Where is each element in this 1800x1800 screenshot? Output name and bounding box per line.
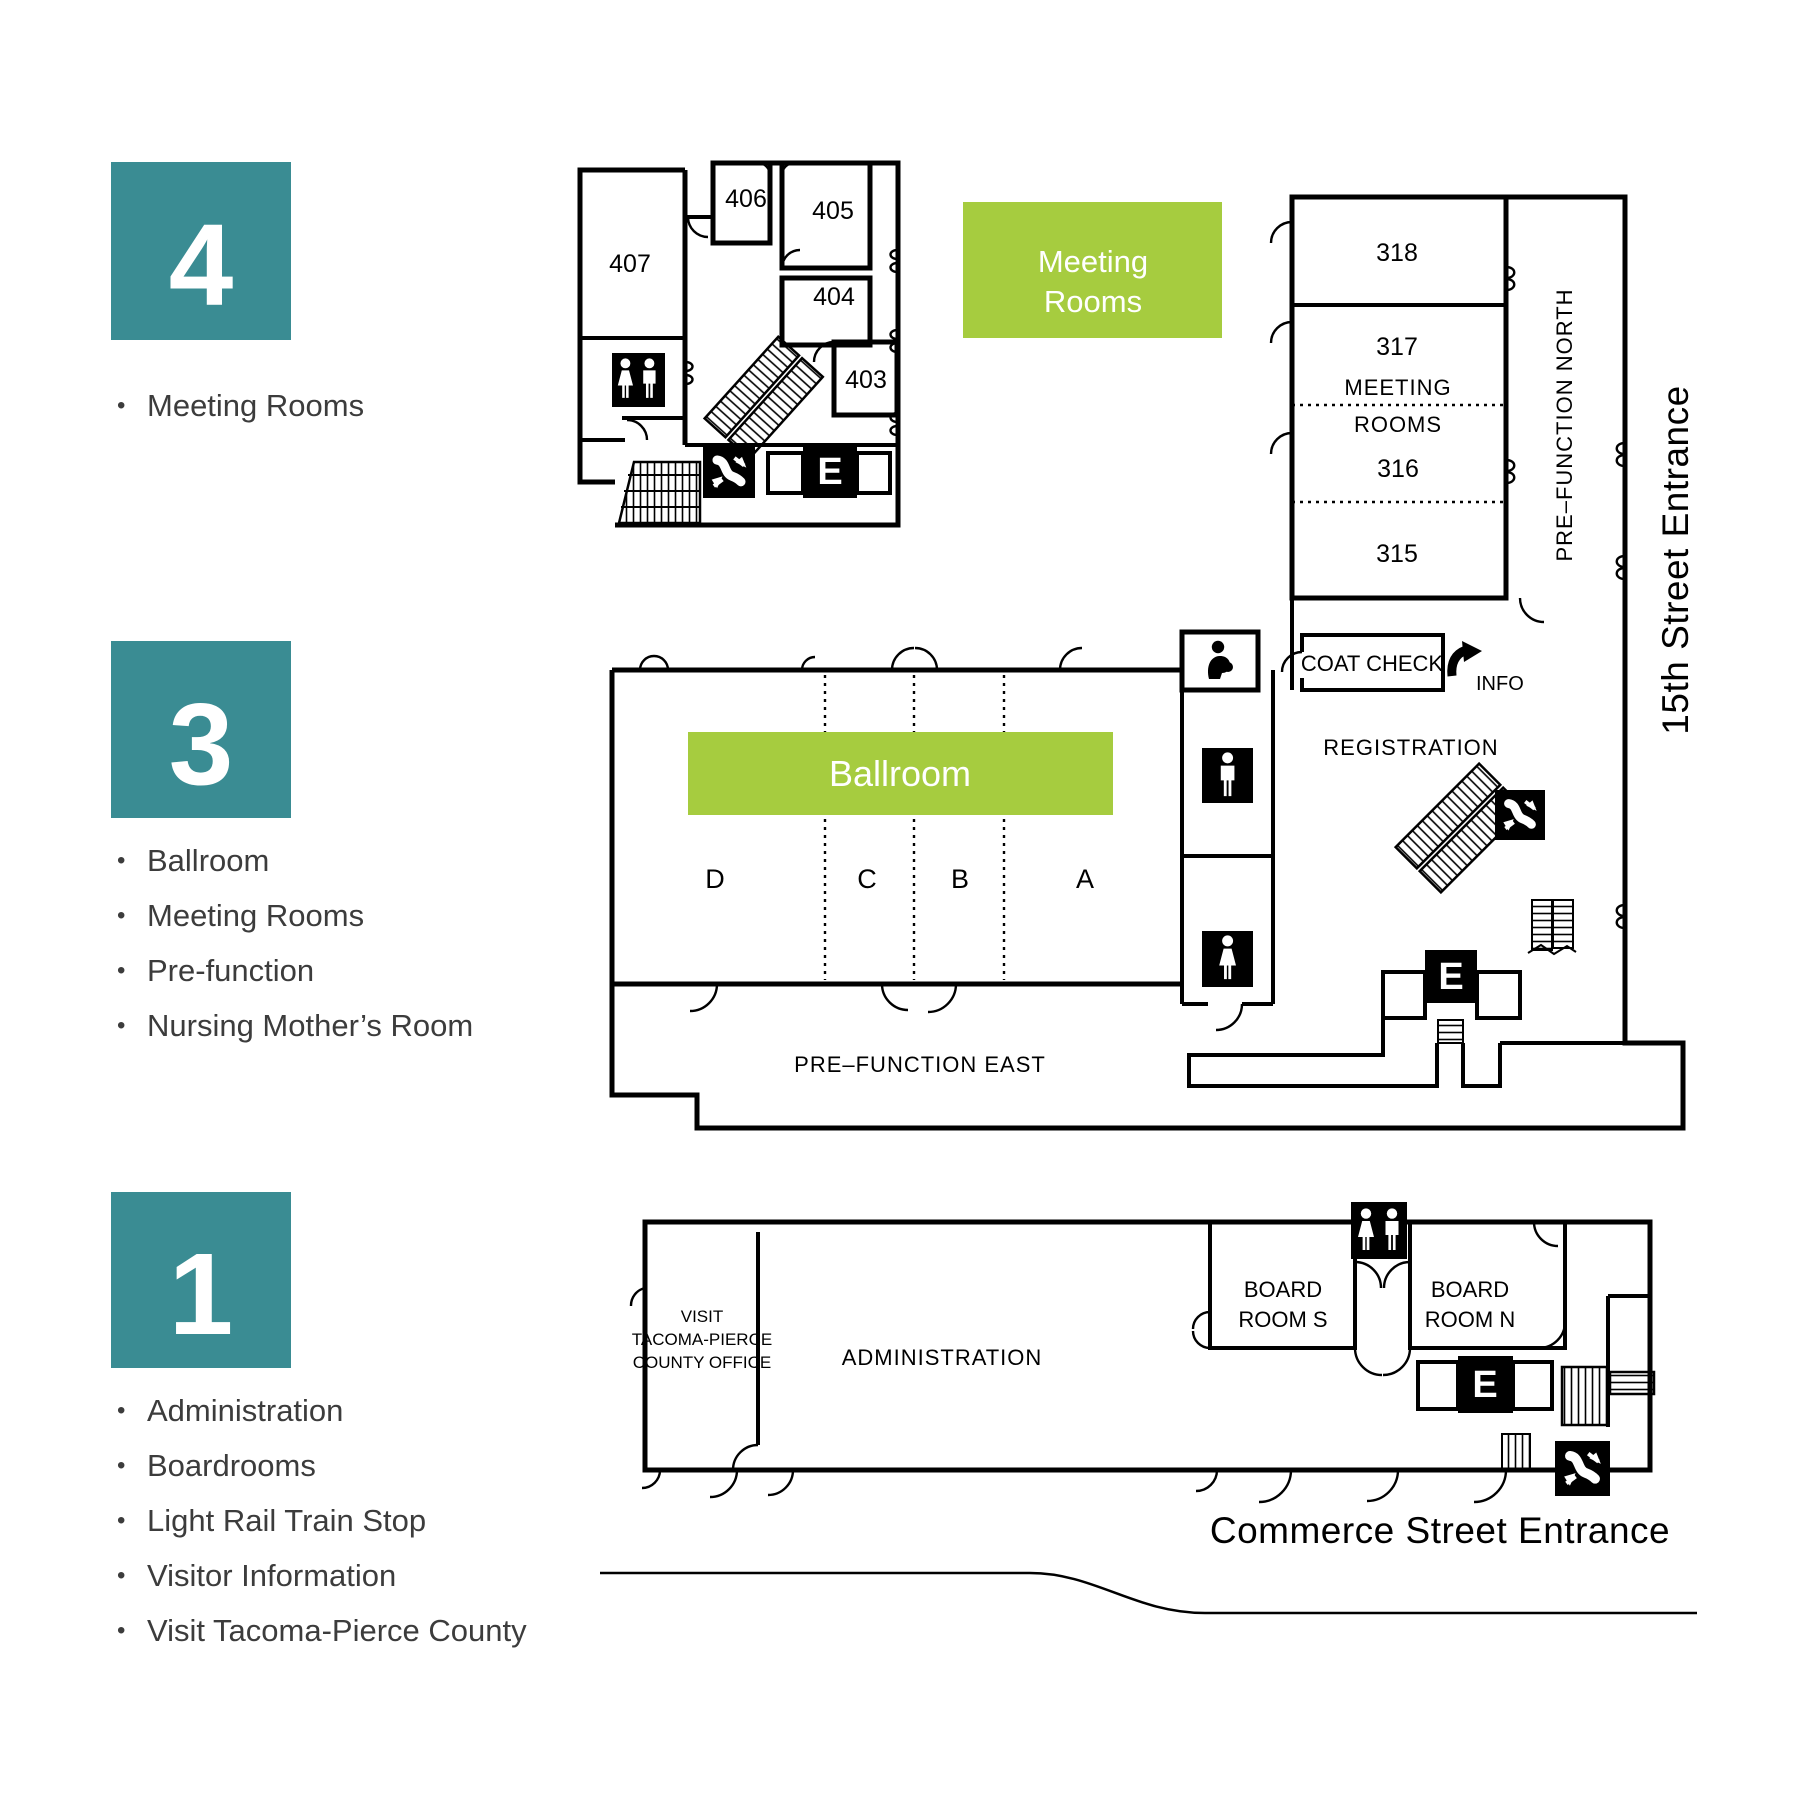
- room-label-405: 405: [812, 197, 854, 225]
- room-label-407: 407: [609, 250, 651, 278]
- room-label-315: 315: [1376, 540, 1418, 568]
- 15th-street-entrance-label: 15th Street Entrance: [1655, 385, 1696, 734]
- restroom-icon: [612, 353, 665, 407]
- visit-office-label-line: VISIT: [681, 1307, 724, 1326]
- ballroom-tag: Ballroom: [688, 732, 1113, 815]
- board-room-s-label: ROOM S: [1238, 1307, 1327, 1332]
- room-label-316: 316: [1377, 455, 1419, 483]
- registration-label: REGISTRATION: [1323, 735, 1498, 760]
- nursing-room-icon: [1208, 641, 1233, 679]
- prefunction-east-label: PRE–FUNCTION EAST: [794, 1052, 1046, 1077]
- info-label: INFO: [1476, 673, 1524, 695]
- visit-office-label-line: TACOMA-PIERCE: [632, 1330, 772, 1349]
- ballroom-section-d: D: [705, 864, 725, 894]
- floor-4-title-line: Rooms: [1044, 284, 1142, 319]
- restroom-icon: [1351, 1202, 1407, 1259]
- commerce-street-entrance-label: Commerce Street Entrance: [1210, 1510, 1670, 1551]
- board-room-n-label: ROOM N: [1425, 1307, 1515, 1332]
- stairs-icon: [1528, 900, 1576, 954]
- room-label-404: 404: [813, 283, 855, 311]
- ballroom-dividers: [825, 675, 1004, 980]
- coat-check-label: COAT CHECK: [1301, 651, 1444, 676]
- escalator-icon: [1495, 790, 1545, 840]
- restroom-women-icon: [1202, 931, 1253, 987]
- ballroom-section-b: B: [951, 864, 969, 894]
- floor-4-title-tag: Meeting Rooms: [963, 202, 1222, 338]
- room-label-403: 403: [845, 366, 887, 394]
- meeting-rooms-label-line: MEETING: [1344, 375, 1451, 400]
- floor-1-plan: E VISIT TACOMA-PIERCE COUNTY OFFICE ADMI…: [600, 1202, 1697, 1613]
- floor-4-title-line: Meeting: [1038, 244, 1148, 279]
- elevator-icon: E: [1418, 1356, 1552, 1413]
- meeting-rooms-label-line: ROOMS: [1354, 412, 1442, 437]
- stairs-icon: [1438, 1020, 1463, 1043]
- prefunction-north-label: PRE–FUNCTION NORTH: [1552, 288, 1577, 561]
- visit-office-label-line: COUNTY OFFICE: [633, 1353, 772, 1372]
- floor-4-plan: E 407 406 405 404 403 Meeting Rooms: [580, 163, 1222, 525]
- board-room-s-label: BOARD: [1244, 1277, 1322, 1302]
- board-room-n-label: BOARD: [1431, 1277, 1509, 1302]
- elevator-icon: E: [768, 445, 890, 498]
- room-label-318: 318: [1376, 239, 1418, 267]
- light-rail-line: [600, 1573, 1697, 1613]
- restroom-men-icon: [1202, 748, 1253, 803]
- escalator-icon: [1555, 1441, 1610, 1496]
- ballroom-label: Ballroom: [829, 753, 971, 794]
- ballroom-section-c: C: [857, 864, 877, 894]
- floorplan-canvas: E 407 406 405 404 403 Meeting Rooms: [0, 0, 1800, 1800]
- room-label-317: 317: [1376, 333, 1418, 361]
- escalator-icon: [703, 446, 755, 498]
- elevator-label: E: [817, 451, 842, 493]
- administration-label: ADMINISTRATION: [842, 1345, 1043, 1370]
- info-icon: [1452, 641, 1482, 676]
- room-label-406: 406: [725, 185, 767, 213]
- elevator-label: E: [1438, 956, 1463, 998]
- stairs-icon: [619, 462, 700, 523]
- elevator-label: E: [1472, 1364, 1497, 1406]
- ballroom-section-a: A: [1076, 864, 1094, 894]
- stairs-icon: [705, 337, 823, 459]
- elevator-icon: E: [1383, 950, 1520, 1018]
